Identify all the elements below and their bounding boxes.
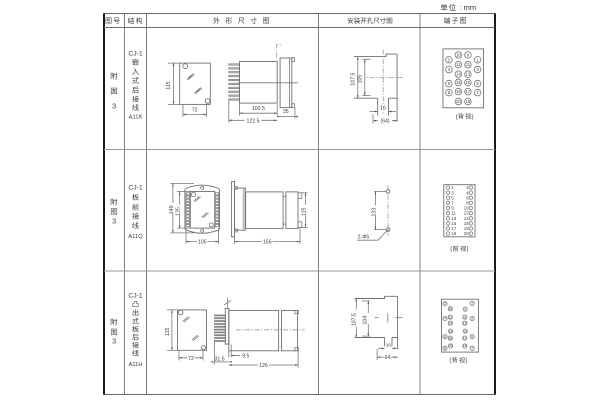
svg-text:14: 14 [456,72,461,77]
svg-text:107.5: 107.5 [350,72,356,85]
svg-text:20: 20 [449,344,453,348]
svg-text:16: 16 [386,342,392,348]
svg-text:2-Φ5: 2-Φ5 [358,234,370,240]
svg-text:31.5: 31.5 [215,356,225,362]
svg-text:3: 3 [471,317,473,321]
svg-text:A11Q: A11Q [128,234,143,240]
svg-text:115: 115 [165,328,171,336]
svg-text:100.5: 100.5 [252,106,265,112]
svg-text:35: 35 [283,109,289,115]
svg-text:5: 5 [471,335,473,339]
svg-text:115: 115 [302,208,308,216]
svg-text:13: 13 [465,72,470,77]
svg-text:19: 19 [465,99,470,104]
svg-text:CJ-1: CJ-1 [128,50,143,57]
svg-text:15: 15 [463,329,467,333]
svg-text:3: 3 [112,337,116,346]
svg-text:): ) [472,114,474,120]
svg-text:3: 3 [476,67,479,72]
svg-text:115: 115 [166,81,172,89]
svg-text:17: 17 [463,336,467,340]
svg-text:): ) [467,247,469,253]
svg-text:6: 6 [448,81,451,86]
svg-text:122.5: 122.5 [247,118,260,124]
svg-text:CJ-1: CJ-1 [128,292,143,299]
svg-text:9: 9 [467,52,470,57]
svg-text:16: 16 [449,329,453,333]
svg-text:12: 12 [449,315,453,319]
svg-text:10: 10 [449,307,453,311]
svg-text:16: 16 [380,105,386,111]
svg-text:9.5: 9.5 [242,353,249,359]
svg-text:105: 105 [358,75,364,84]
svg-text:): ) [465,358,467,364]
svg-text:mm: mm [464,3,477,12]
svg-text:(: ( [450,247,452,253]
svg-text:16: 16 [456,80,461,85]
svg-text:72: 72 [188,356,194,362]
svg-text:72: 72 [192,108,198,114]
svg-text:(64): (64) [380,119,389,125]
svg-text:19: 19 [463,344,467,348]
svg-text:20: 20 [456,99,461,104]
svg-text:2: 2 [444,302,446,306]
svg-text:7: 7 [471,346,473,350]
svg-text:2: 2 [448,57,451,62]
svg-text:149: 149 [169,205,175,214]
svg-text:4: 4 [448,67,451,72]
svg-text:64: 64 [384,355,390,361]
svg-text::: : [460,3,462,12]
svg-text:(: ( [456,114,458,120]
svg-text:(: ( [449,358,451,364]
svg-text:20: 20 [464,231,469,236]
svg-text:5: 5 [476,81,479,86]
svg-text:10: 10 [456,52,461,57]
svg-text:8: 8 [448,90,451,95]
svg-text:A11H: A11H [128,362,142,368]
svg-text:6: 6 [444,335,446,339]
svg-text:8: 8 [444,346,446,350]
svg-text:126: 126 [259,363,268,369]
svg-text:3: 3 [112,217,116,226]
svg-text:1: 1 [476,57,479,62]
svg-text:1: 1 [471,302,473,306]
svg-text:14: 14 [449,321,453,325]
svg-text:13: 13 [463,321,467,325]
svg-text:11: 11 [463,315,467,319]
svg-text:3: 3 [112,102,116,111]
svg-text:18: 18 [449,336,453,340]
svg-text:12: 12 [456,62,461,67]
svg-text:4: 4 [444,317,446,321]
svg-text:18: 18 [456,89,461,94]
svg-text:15: 15 [465,80,470,85]
svg-text:11: 11 [466,62,471,67]
svg-text:7: 7 [476,90,479,95]
svg-text:104: 104 [363,316,369,325]
svg-text:107.5: 107.5 [351,313,357,326]
svg-text:A11K: A11K [129,115,143,121]
svg-text:17: 17 [465,89,470,94]
svg-text:125: 125 [176,207,182,216]
svg-text:CJ-1: CJ-1 [128,184,143,191]
svg-text:9: 9 [464,307,466,311]
svg-text:105: 105 [198,240,207,246]
svg-text:133: 133 [372,208,378,217]
svg-text:19: 19 [451,231,456,236]
svg-text:156: 156 [263,240,272,246]
